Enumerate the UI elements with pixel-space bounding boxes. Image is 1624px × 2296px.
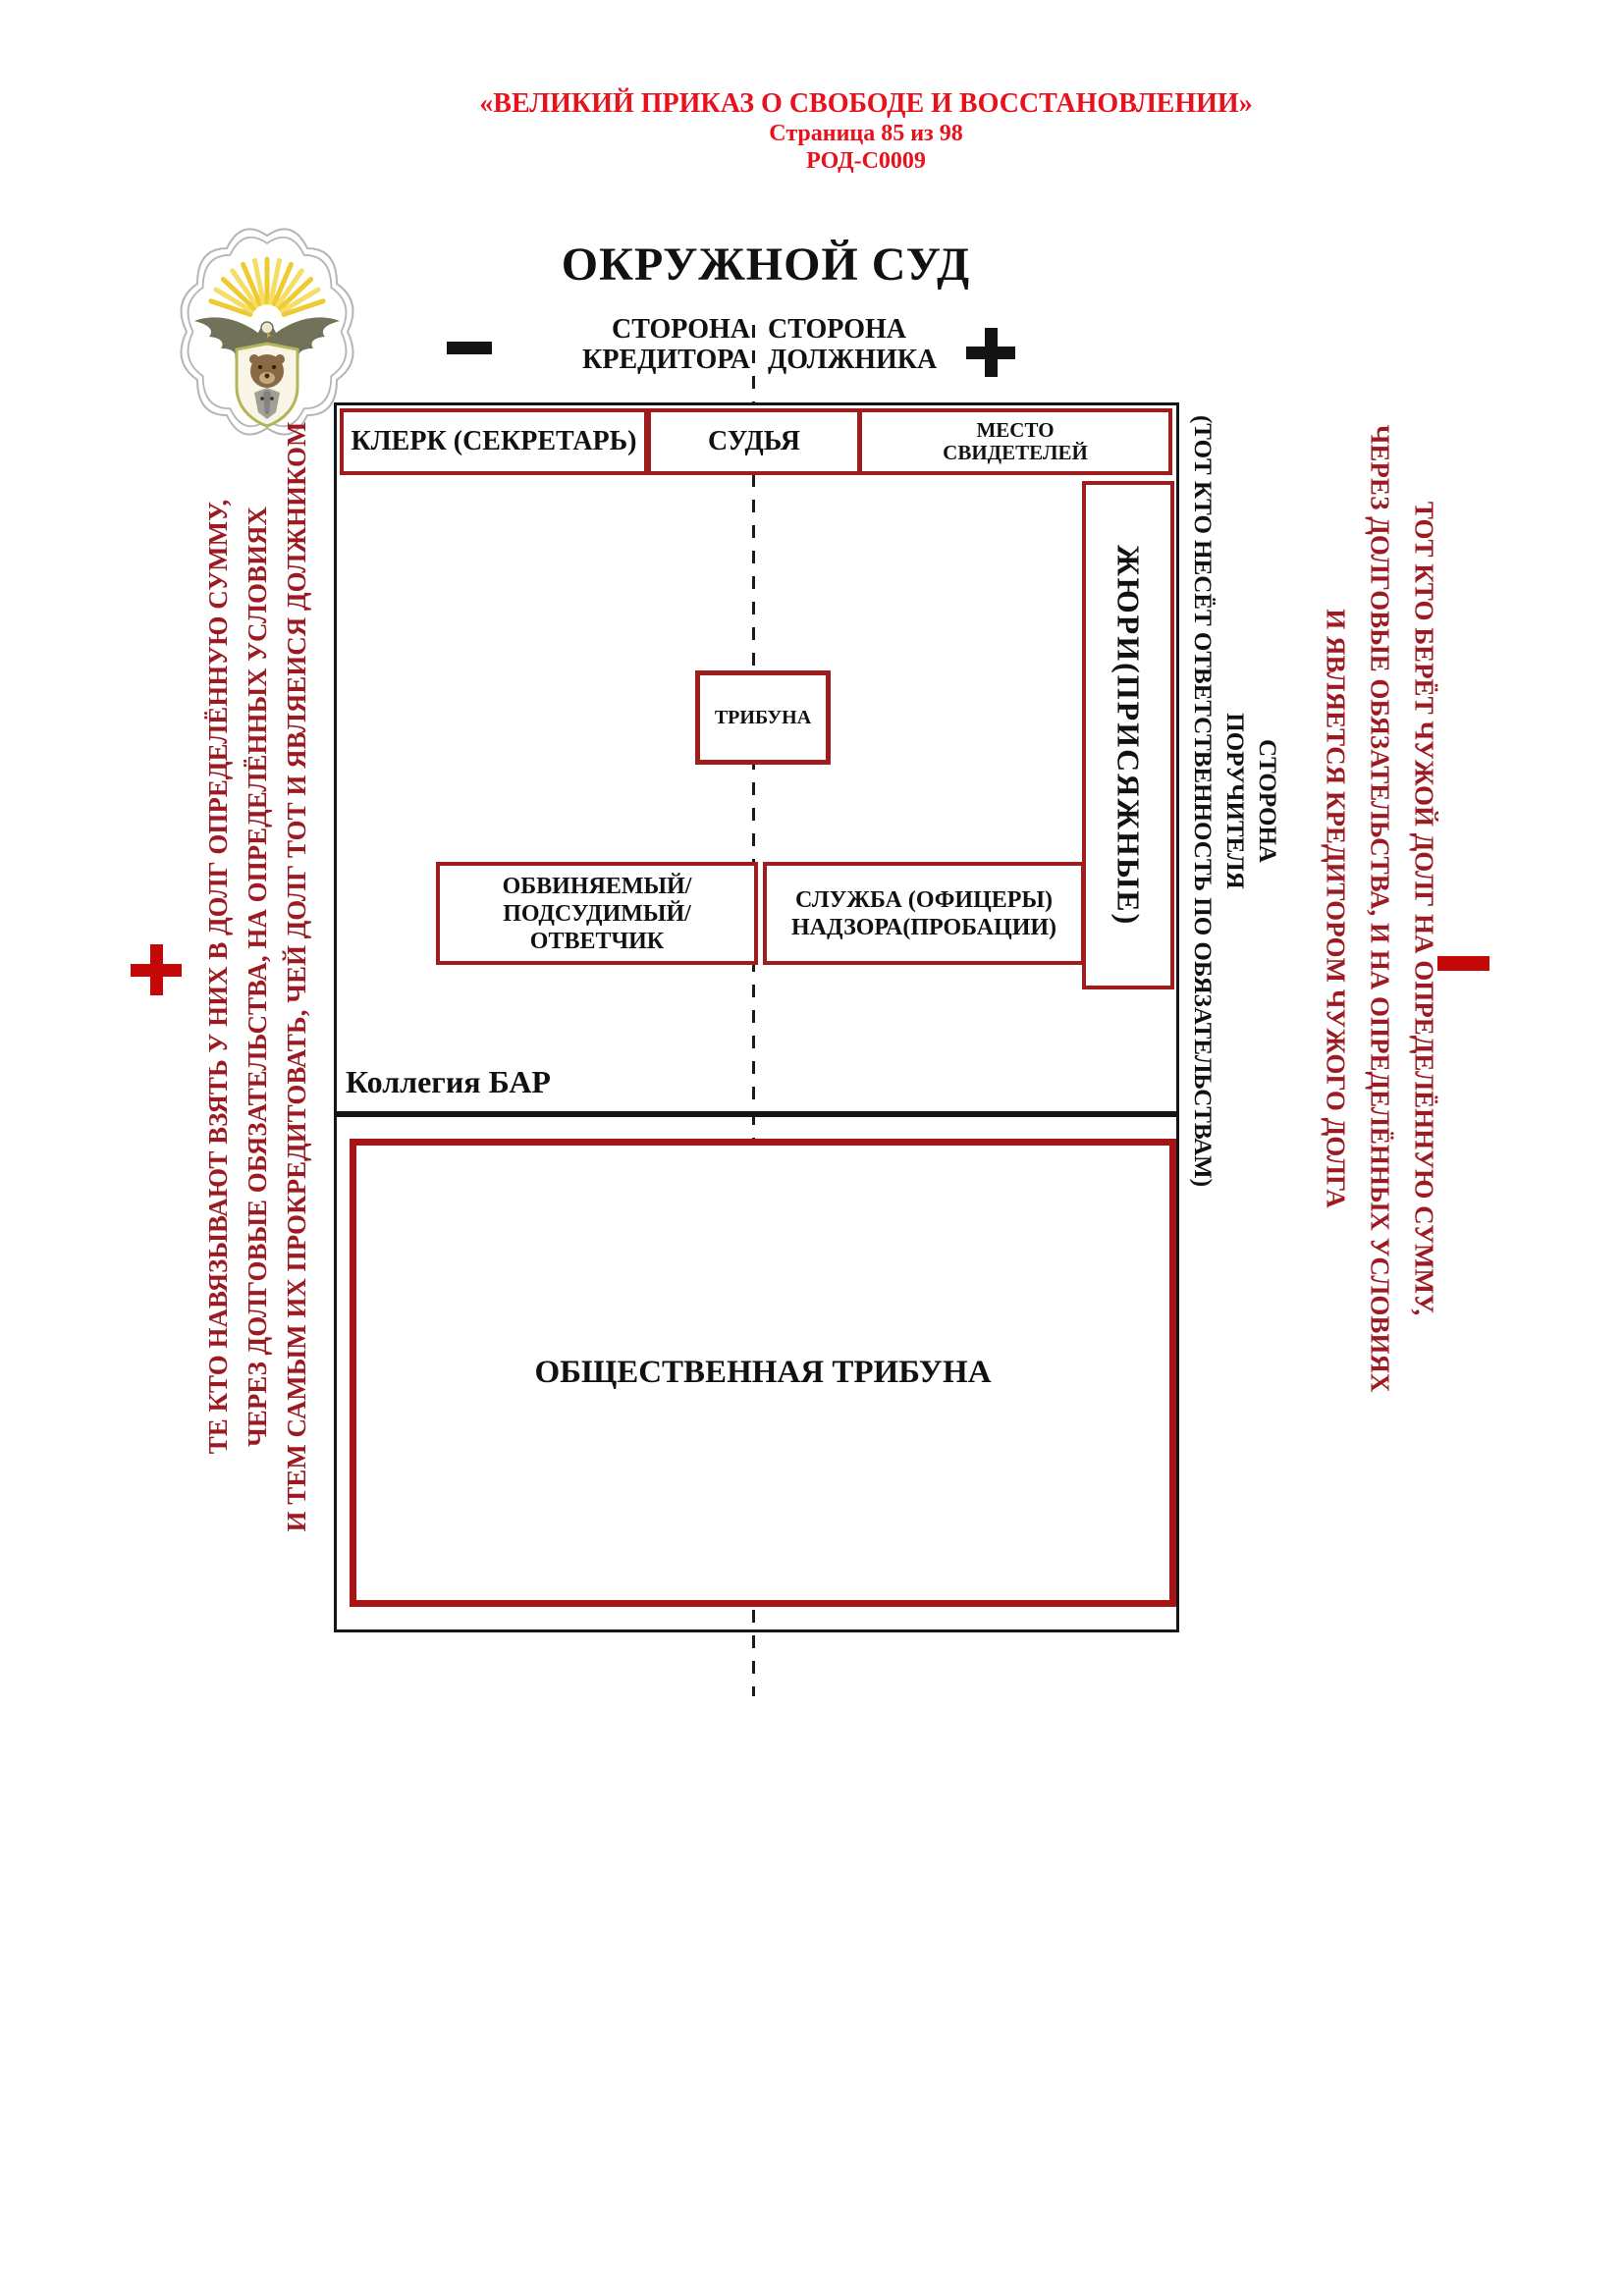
creditor-side-line2: КРЕДИТОРА [530, 345, 750, 375]
document-header: «ВЕЛИКИЙ ПРИКАЗ О СВОБОДЕ И ВОССТАНОВЛЕН… [375, 88, 1357, 175]
document-page: «ВЕЛИКИЙ ПРИКАЗ О СВОБОДЕ И ВОССТАНОВЛЕН… [0, 0, 1624, 2296]
tribune-label: ТРИБУНА [715, 707, 811, 729]
debtor-plus-sign [966, 328, 1015, 377]
guarantor-line2: ПОРУЧИТЕЛЯ [1219, 389, 1252, 1213]
probation-label-line1: СЛУЖБА (ОФИЦЕРЫ) [795, 886, 1053, 914]
debtor-margin-line2: ЧЕРЕЗ ДОЛГОВЫЕ ОБЯЗАТЕЛЬСТВА, И НА ОПРЕД… [1358, 389, 1402, 1429]
creditor-side-label: СТОРОНА КРЕДИТОРА [530, 314, 750, 375]
document-code: РОД-С0009 [375, 147, 1357, 175]
center-dashed-line [752, 757, 755, 862]
debtor-side-label: СТОРОНА ДОЛЖНИКА [768, 314, 988, 375]
probation-service-box: СЛУЖБА (ОФИЦЕРЫ) НАДЗОРА(ПРОБАЦИИ) [763, 862, 1085, 965]
jury-label: ЖЮРИ(ПРИСЯЖНЫЕ) [1110, 545, 1147, 926]
debtor-margin-text: ТОТ КТО БЕРЁТ ЧУЖОЙ ДОЛГ НА ОПРЕДЕЛЁННУЮ… [1314, 389, 1446, 1429]
public-gallery-label: ОБЩЕСТВЕННАЯ ТРИБУНА [534, 1355, 991, 1391]
center-dashed-line [752, 325, 755, 403]
center-dashed-line [752, 474, 755, 670]
probation-label-line2: НАДЗОРА(ПРОБАЦИИ) [791, 914, 1056, 941]
debtor-side-line1: СТОРОНА [768, 314, 988, 345]
guarantor-line1: СТОРОНА [1252, 389, 1284, 1213]
judge-box: СУДЬЯ [647, 408, 861, 475]
diagram-title: ОКРУЖНОЙ СУД [471, 238, 1060, 292]
clerk-box: КЛЕРК (СЕКРЕТАРЬ) [340, 408, 648, 475]
debtor-margin-line3: И ЯВЛЯЕТСЯ КРЕДИТОРОМ ЧУЖОГО ДОЛГА [1314, 389, 1358, 1429]
witness-stand-box: МЕСТО СВИДЕТЕЛЕЙ [858, 408, 1172, 475]
document-title: «ВЕЛИКИЙ ПРИКАЗ О СВОБОДЕ И ВОССТАНОВЛЕН… [375, 88, 1357, 120]
creditor-margin-text: ТЕ КТО НАВЯЗЫВАЮТ ВЗЯТЬ У НИХ В ДОЛГ ОПР… [198, 402, 316, 1551]
public-gallery-box: ОБЩЕСТВЕННАЯ ТРИБУНА [350, 1139, 1176, 1607]
sun-rays-icon [211, 259, 323, 314]
judge-label: СУДЬЯ [708, 426, 800, 457]
creditor-margin-line3: И ТЕМ САМЫМ ИХ ПРОКРЕДИТОВАТЬ, ЧЕЙ ДОЛГ … [277, 402, 316, 1551]
guarantor-side-text: СТОРОНА ПОРУЧИТЕЛЯ (ТОТ КТО НЕСЁТ ОТВЕТС… [1186, 389, 1284, 1213]
jury-box: ЖЮРИ(ПРИСЯЖНЫЕ) [1082, 481, 1174, 989]
defendant-label-line1: ОБВИНЯЕМЫЙ/ [503, 873, 692, 900]
creditor-margin-line2: ЧЕРЕЗ ДОЛГОВЫЕ ОБЯЗАТЕЛЬСТВА, НА ОПРЕДЕЛ… [238, 402, 277, 1551]
guarantor-line3: (ТОТ КТО НЕСЁТ ОТВЕТСТВЕННОСТЬ ПО ОБЯЗАТ… [1187, 389, 1219, 1213]
creditor-minus-sign [447, 342, 492, 354]
witness-label-line2: СВИДЕТЕЛЕЙ [943, 442, 1088, 464]
witness-label-line1: МЕСТО [976, 419, 1054, 442]
tribune-box: ТРИБУНА [695, 670, 831, 765]
debtor-margin-line1: ТОТ КТО БЕРЁТ ЧУЖОЙ ДОЛГ НА ОПРЕДЕЛЁННУЮ… [1402, 389, 1446, 1429]
creditor-side-line1: СТОРОНА [530, 314, 750, 345]
center-dashed-line [752, 959, 755, 1163]
center-dashed-line [752, 1610, 755, 1696]
bar-divider-line [334, 1111, 1176, 1117]
defendant-label-line2: ПОДСУДИМЫЙ/ОТВЕТЧИК [440, 900, 754, 955]
page-number: Страница 85 из 98 [375, 120, 1357, 147]
clerk-label: КЛЕРК (СЕКРЕТАРЬ) [352, 426, 637, 457]
debtor-side-line2: ДОЛЖНИКА [768, 345, 988, 375]
left-margin-plus-sign [131, 944, 182, 995]
defendant-box: ОБВИНЯЕМЫЙ/ ПОДСУДИМЫЙ/ОТВЕТЧИК [436, 862, 758, 965]
creditor-margin-line1: ТЕ КТО НАВЯЗЫВАЮТ ВЗЯТЬ У НИХ В ДОЛГ ОПР… [198, 402, 238, 1551]
bar-association-label: Коллегия БАР [346, 1064, 551, 1100]
